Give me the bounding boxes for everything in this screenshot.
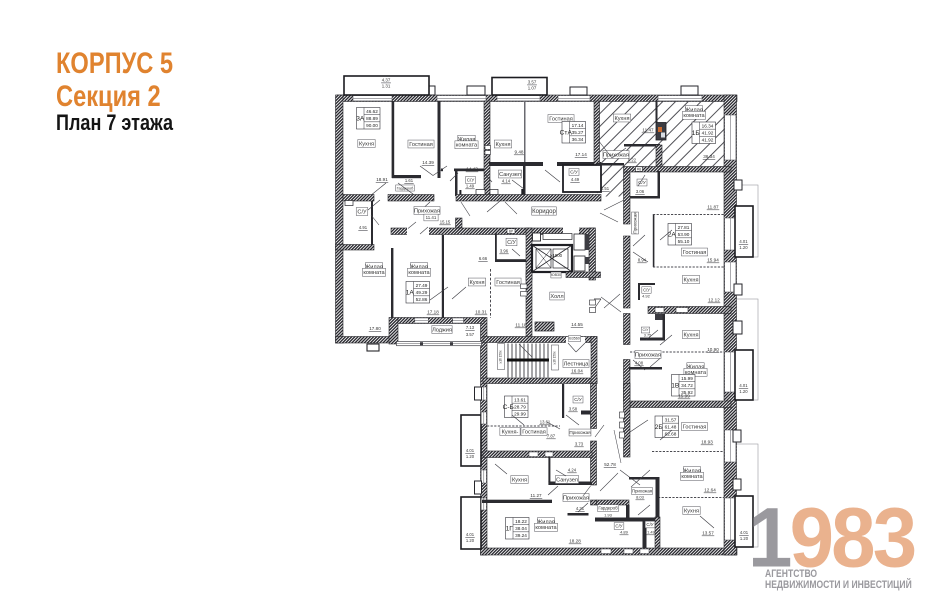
svg-text:7.87: 7.87 bbox=[547, 434, 556, 439]
svg-text:4.37: 4.37 bbox=[382, 78, 391, 83]
svg-text:Гостиная: Гостиная bbox=[522, 429, 545, 435]
svg-text:36.34: 36.34 bbox=[703, 154, 715, 159]
svg-text:В3560: В3560 bbox=[569, 337, 579, 341]
svg-text:46.62: 46.62 bbox=[366, 109, 378, 114]
svg-text:29.99: 29.99 bbox=[514, 412, 526, 417]
svg-text:3.57: 3.57 bbox=[466, 332, 475, 337]
svg-text:≥1000: ≥1000 bbox=[550, 253, 563, 258]
svg-text:4.51: 4.51 bbox=[601, 186, 610, 191]
svg-text:комната: комната bbox=[408, 270, 430, 276]
svg-text:7.13: 7.13 bbox=[466, 325, 475, 330]
svg-text:12.12: 12.12 bbox=[708, 298, 720, 303]
svg-text:1.61: 1.61 bbox=[405, 178, 414, 183]
svg-text:Прихожая: Прихожая bbox=[569, 430, 591, 435]
svg-text:90.00: 90.00 bbox=[366, 123, 378, 128]
svg-text:1.49: 1.49 bbox=[647, 530, 656, 535]
svg-text:28.79: 28.79 bbox=[514, 404, 526, 409]
svg-text:35.27: 35.27 bbox=[572, 130, 584, 135]
svg-text:1.20: 1.20 bbox=[466, 538, 475, 543]
svg-text:12.64: 12.64 bbox=[704, 488, 716, 493]
svg-text:3.73: 3.73 bbox=[575, 442, 584, 447]
svg-text:С/У: С/У bbox=[357, 209, 367, 215]
svg-text:11.87: 11.87 bbox=[707, 205, 719, 210]
svg-text:4.91: 4.91 bbox=[359, 225, 368, 230]
svg-text:18.91: 18.91 bbox=[376, 177, 388, 182]
svg-text:Кухня-: Кухня- bbox=[502, 429, 519, 435]
svg-text:1.20: 1.20 bbox=[739, 389, 748, 394]
svg-text:11.41: 11.41 bbox=[426, 215, 437, 220]
svg-text:27.81: 27.81 bbox=[678, 225, 690, 230]
svg-text:17.80: 17.80 bbox=[369, 326, 381, 331]
svg-text:ФВ: ФВ bbox=[637, 168, 642, 172]
svg-text:15.99: 15.99 bbox=[681, 376, 693, 381]
svg-text:Лестница: Лестница bbox=[564, 361, 590, 367]
svg-text:4.14: 4.14 bbox=[502, 179, 511, 184]
svg-text:1.20: 1.20 bbox=[739, 245, 748, 250]
svg-text:3.57: 3.57 bbox=[528, 80, 537, 85]
svg-text:Прихожая: Прихожая bbox=[633, 212, 638, 234]
svg-text:1.49: 1.49 bbox=[466, 184, 475, 189]
svg-text:88.89: 88.89 bbox=[366, 116, 378, 121]
svg-text:1.20: 1.20 bbox=[466, 454, 475, 459]
svg-text:61.48: 61.48 bbox=[665, 424, 677, 429]
svg-text:ЮВ30: ЮВ30 bbox=[551, 273, 561, 277]
svg-text:1В: 1В bbox=[671, 383, 680, 390]
svg-text:Кухня: Кухня bbox=[496, 142, 511, 148]
svg-text:4.92: 4.92 bbox=[642, 294, 651, 299]
svg-text:1Б: 1Б bbox=[692, 130, 700, 137]
svg-text:комната: комната bbox=[456, 143, 478, 149]
svg-text:8.03: 8.03 bbox=[636, 495, 645, 500]
svg-text:С/У: С/У bbox=[467, 178, 475, 183]
svg-text:комната: комната bbox=[363, 270, 385, 276]
svg-text:Гостиная: Гостиная bbox=[496, 280, 519, 286]
svg-text:10.90: 10.90 bbox=[707, 347, 719, 352]
svg-text:Лоджия: Лоджия bbox=[432, 327, 452, 333]
svg-text:18.93: 18.93 bbox=[701, 440, 713, 445]
svg-text:11.18: 11.18 bbox=[515, 323, 527, 328]
svg-text:53.90: 53.90 bbox=[678, 232, 690, 237]
svg-text:13.61: 13.61 bbox=[540, 420, 551, 425]
svg-text:27.49: 27.49 bbox=[416, 283, 428, 288]
svg-text:62.68: 62.68 bbox=[665, 432, 677, 437]
svg-text:комната: комната bbox=[681, 474, 703, 480]
svg-text:15.94: 15.94 bbox=[707, 258, 719, 263]
svg-text:4.01: 4.01 bbox=[739, 239, 748, 244]
svg-text:С/У: С/У bbox=[643, 328, 650, 332]
svg-text:6.66: 6.66 bbox=[479, 256, 488, 261]
svg-text:Кухня: Кухня bbox=[359, 141, 374, 147]
svg-text:10.31: 10.31 bbox=[475, 310, 487, 315]
svg-text:≥16 150х: ≥16 150х bbox=[499, 350, 503, 363]
svg-text:17.14: 17.14 bbox=[575, 152, 587, 157]
svg-text:9.48: 9.48 bbox=[515, 150, 524, 155]
svg-text:41.92: 41.92 bbox=[702, 130, 714, 135]
svg-text:Гостиная: Гостиная bbox=[409, 142, 432, 148]
svg-text:Прихожая: Прихожая bbox=[632, 489, 653, 494]
svg-text:39.24: 39.24 bbox=[515, 533, 527, 538]
svg-text:Кухня: Кухня bbox=[470, 280, 485, 286]
svg-text:ВР: ВР bbox=[509, 230, 513, 234]
svg-text:3А: 3А bbox=[356, 116, 365, 123]
svg-text:49.29: 49.29 bbox=[416, 290, 428, 295]
svg-text:1.93: 1.93 bbox=[604, 513, 613, 518]
svg-text:Гостиная: Гостиная bbox=[683, 424, 706, 430]
svg-text:15.15: 15.15 bbox=[440, 220, 451, 225]
svg-text:С/У: С/У bbox=[643, 287, 650, 292]
svg-text:14.55: 14.55 bbox=[571, 322, 583, 327]
svg-text:2Б: 2Б bbox=[655, 424, 663, 431]
svg-text:4.01: 4.01 bbox=[466, 448, 475, 453]
svg-text:С/У: С/У bbox=[507, 240, 516, 246]
svg-text:11.27: 11.27 bbox=[530, 493, 542, 498]
svg-text:34.72: 34.72 bbox=[681, 383, 693, 388]
svg-text:С-Б: С-Б bbox=[503, 404, 514, 411]
svg-text:18.28: 18.28 bbox=[569, 539, 581, 544]
svg-text:1.31: 1.31 bbox=[382, 84, 391, 89]
svg-text:3.06: 3.06 bbox=[636, 189, 645, 194]
svg-text:С/У: С/У bbox=[574, 397, 582, 402]
svg-text:Гостиная: Гостиная bbox=[683, 250, 706, 256]
svg-text:4.24: 4.24 bbox=[568, 468, 577, 473]
svg-text:Санузел: Санузел bbox=[499, 172, 521, 178]
svg-text:комната: комната bbox=[535, 525, 557, 531]
svg-text:С/У: С/У bbox=[615, 524, 622, 529]
svg-text:55.10: 55.10 bbox=[678, 239, 690, 244]
svg-text:Кухня: Кухня bbox=[684, 277, 699, 283]
svg-text:14.43: 14.43 bbox=[466, 167, 478, 172]
svg-text:16.04: 16.04 bbox=[571, 369, 583, 374]
svg-text:13.57: 13.57 bbox=[702, 531, 714, 536]
svg-text:1Г: 1Г bbox=[506, 526, 514, 533]
svg-text:15.99: 15.99 bbox=[678, 394, 690, 399]
svg-text:Прихожая: Прихожая bbox=[563, 495, 589, 501]
svg-text:Кухня: Кухня bbox=[684, 332, 699, 338]
svg-text:С/У: С/У bbox=[570, 170, 578, 175]
svg-text:3.58: 3.58 bbox=[569, 407, 578, 412]
svg-text:Коридор: Коридор bbox=[532, 209, 556, 215]
svg-text:52.86: 52.86 bbox=[416, 297, 428, 302]
svg-text:СтА: СтА bbox=[560, 130, 573, 137]
svg-text:11.47: 11.47 bbox=[642, 128, 654, 133]
svg-text:комната: комната bbox=[683, 113, 705, 119]
svg-text:17.18: 17.18 bbox=[427, 310, 439, 315]
svg-text:31.57: 31.57 bbox=[665, 417, 677, 422]
svg-text:1А: 1А bbox=[406, 290, 415, 297]
svg-text:13.61: 13.61 bbox=[514, 397, 526, 402]
svg-text:Прихожая: Прихожая bbox=[414, 208, 440, 214]
svg-text:Гардероб: Гардероб bbox=[598, 506, 618, 511]
svg-text:9.22: 9.22 bbox=[628, 158, 637, 163]
svg-text:17.14: 17.14 bbox=[572, 123, 584, 128]
svg-text:3.96: 3.96 bbox=[500, 249, 509, 254]
svg-text:38.04: 38.04 bbox=[515, 526, 527, 531]
svg-text:16.34: 16.34 bbox=[702, 123, 714, 128]
svg-text:С/У: С/У bbox=[646, 522, 653, 527]
svg-text:Кухня: Кухня bbox=[615, 116, 630, 122]
svg-text:18.22: 18.22 bbox=[515, 519, 527, 524]
svg-text:36.34: 36.34 bbox=[572, 137, 584, 142]
svg-text:14.39: 14.39 bbox=[422, 160, 434, 165]
svg-text:1.07: 1.07 bbox=[528, 86, 537, 91]
svg-text:Прихожая: Прихожая bbox=[635, 352, 661, 358]
svg-text:52.78: 52.78 bbox=[604, 462, 616, 467]
svg-text:Кухня: Кухня bbox=[684, 508, 699, 514]
svg-text:4.01: 4.01 bbox=[739, 383, 748, 388]
svg-text:4.89: 4.89 bbox=[620, 530, 629, 535]
svg-text:41.92: 41.92 bbox=[702, 138, 714, 143]
svg-text:≥16 150х: ≥16 150х bbox=[553, 351, 557, 364]
svg-text:4.01: 4.01 bbox=[466, 532, 475, 537]
svg-text:Кухня: Кухня bbox=[512, 477, 527, 483]
svg-text:Холл: Холл bbox=[550, 294, 563, 300]
svg-text:4.49: 4.49 bbox=[571, 177, 580, 182]
svg-text:Санузел: Санузел bbox=[556, 477, 578, 483]
